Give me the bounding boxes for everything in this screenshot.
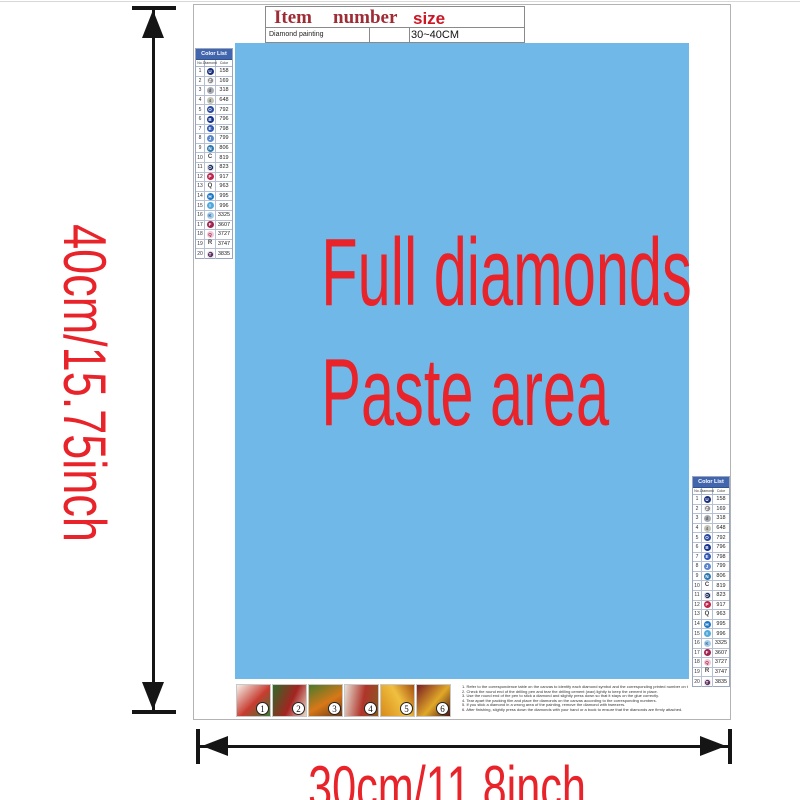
color-row-symbol: R [702,668,713,677]
color-row-code: 799 [713,562,729,571]
color-list-row: 11O823 [693,591,729,601]
diamond-color-dot: I [207,202,214,209]
step-number-badge: 6 [436,702,449,715]
color-row-number: 1 [693,495,702,504]
color-row-number: 14 [693,620,702,629]
color-row-number: 1 [196,67,205,76]
color-list-row: 9N806 [693,572,729,582]
info-size-value: 30~40CM [411,29,459,41]
color-row-code: 3325 [216,211,232,220]
horizontal-arrow-line [198,745,730,748]
color-list-columns: No. Diamond Color [693,488,729,495]
color-row-code: 3727 [713,658,729,667]
color-row-symbol: K [702,639,713,648]
color-list-row: 9N806 [196,144,232,154]
diamond-symbol-letter: C [208,154,212,161]
color-list-row: 14H995 [196,192,232,202]
color-row-number: 18 [196,230,205,239]
color-list-row: 20T3835 [693,677,729,687]
color-list-row: 3d318 [196,86,232,96]
product-spec-image: Item number size Diamond painting 30~40C… [0,0,800,800]
paste-area-title-line1: Full diamonds [321,225,602,321]
color-list-row: 13Q963 [196,182,232,192]
color-row-code: 963 [216,182,232,191]
color-row-number: 18 [693,658,702,667]
color-row-number: 2 [693,505,702,514]
color-row-number: 3 [693,514,702,523]
color-row-code: 996 [216,201,232,210]
color-row-number: 12 [196,173,205,182]
color-row-code: 792 [713,533,729,542]
color-list-row: 6B796 [196,115,232,125]
item-info-table: Item number size Diamond painting 30~40C… [265,6,525,43]
color-list-row: 12P917 [196,173,232,183]
color-row-code: 917 [216,173,232,182]
diamond-color-dot: K [704,640,711,647]
diamond-color-dot: P [704,601,711,608]
color-row-code: 823 [216,163,232,172]
color-list-row: 44648 [196,96,232,106]
arrow-up-icon [142,10,164,38]
color-list-row: 7E798 [196,125,232,135]
color-row-symbol: Q [702,610,713,619]
column-color: Color [216,60,232,66]
color-row-code: 792 [216,105,232,114]
color-row-code: 3325 [713,639,729,648]
color-row-symbol: J [702,562,713,571]
diamond-color-dot: T [704,679,711,686]
color-list-row: 2Z169 [196,77,232,87]
color-row-number: 6 [693,543,702,552]
color-row-symbol: Z [205,77,216,86]
color-list-row: 12P917 [693,601,729,611]
color-row-number: 8 [196,134,205,143]
color-row-symbol: U [702,495,713,504]
color-list-row: 3d318 [693,514,729,524]
column-color: Color [713,488,729,494]
step-number-badge: 5 [400,702,413,715]
color-row-number: 13 [196,182,205,191]
color-row-symbol: O [205,163,216,172]
color-row-symbol: E [205,125,216,134]
color-list-row: 17F3607 [196,221,232,231]
color-row-number: 11 [693,591,702,600]
diamond-color-dot: F [704,649,711,656]
color-row-symbol: O [702,591,713,600]
color-row-code: 823 [713,591,729,600]
color-row-code: 995 [713,620,729,629]
color-row-symbol: O [702,533,713,542]
color-list-row: 20T3835 [196,249,232,259]
color-row-code: 318 [713,514,729,523]
color-row-code: 996 [713,629,729,638]
step-thumbnails: 123456 [236,684,451,717]
step-thumbnail: 6 [416,684,451,717]
vertical-arrow-bottom-cap [132,710,176,714]
top-edge-line [0,1,800,2]
color-row-number: 16 [693,639,702,648]
width-dimension-label: 30cm/11.8inch [253,758,642,800]
height-dimension-label: 40cm/15.75inch [53,143,115,623]
color-row-number: 10 [196,153,205,162]
diamond-color-dot: B [207,116,214,123]
info-item-value: Diamond painting [269,31,323,38]
color-row-code: 806 [713,572,729,581]
diamond-color-dot: O [207,164,214,171]
color-row-number: 4 [693,524,702,533]
color-row-code: 798 [216,125,232,134]
column-diamond: Diamond [205,60,216,66]
color-row-code: 318 [216,86,232,95]
color-row-code: 798 [713,553,729,562]
diamond-color-dot: 4 [704,525,711,532]
info-table-row: Diamond painting 30~40CM [266,28,524,42]
color-row-symbol: C [702,581,713,590]
color-row-code: 819 [713,581,729,590]
vertical-arrow-line [152,8,155,712]
table-divider [409,28,410,43]
color-list-row: 10C819 [196,153,232,163]
color-row-number: 9 [693,572,702,581]
info-header-item: Item [274,7,312,29]
step-number-badge: 2 [292,702,305,715]
color-row-number: 13 [693,610,702,619]
color-list-row: 11O823 [196,163,232,173]
color-row-code: 3607 [713,649,729,658]
color-row-symbol: J [205,134,216,143]
color-row-symbol: Q [205,230,216,239]
color-row-symbol: N [702,572,713,581]
color-row-code: 3607 [216,221,232,230]
color-row-symbol: T [205,249,216,259]
diamond-symbol-letter: Q [208,183,213,190]
color-row-number: 11 [196,163,205,172]
color-row-number: 8 [693,562,702,571]
color-row-symbol: Q [702,658,713,667]
color-row-symbol: P [205,173,216,182]
color-row-number: 17 [196,221,205,230]
instruction-line: 6. After finishing, slightly press down … [462,708,688,713]
color-list-left: Color List No. Diamond Color 1U1582Z1693… [195,48,233,259]
color-list-row: 7E798 [693,553,729,563]
color-row-number: 7 [196,125,205,134]
color-row-symbol: d [702,514,713,523]
color-row-symbol: B [205,115,216,124]
color-row-code: 917 [713,601,729,610]
color-row-code: 3747 [216,240,232,249]
color-list-row: 15I996 [196,201,232,211]
color-row-symbol: O [205,105,216,114]
color-row-number: 3 [196,86,205,95]
color-row-symbol: Z [702,505,713,514]
diamond-color-dot: Q [704,659,711,666]
color-row-symbol: T [702,677,713,687]
arrow-down-icon [142,682,164,710]
color-row-code: 3835 [713,677,729,687]
arrow-right-icon [700,736,726,756]
color-list-row: 19R3747 [196,240,232,250]
step-thumbnail: 5 [380,684,415,717]
color-row-symbol: K [205,211,216,220]
info-header-size: size [413,9,445,29]
color-list-row: 8J799 [693,562,729,572]
color-row-number: 19 [196,240,205,249]
color-row-symbol: N [205,144,216,153]
color-list-row: 17F3607 [693,649,729,659]
color-list-row: 18Q3727 [693,658,729,668]
step-number-badge: 1 [256,702,269,715]
color-list-title: Color List [693,477,729,488]
diamond-color-dot: 4 [207,97,214,104]
step-number-badge: 3 [328,702,341,715]
diamond-color-dot: N [704,573,711,580]
color-list-title: Color List [196,49,232,60]
diamond-color-dot: O [207,106,214,113]
diamond-symbol-letter: C [705,582,709,589]
diamond-color-dot: d [207,87,214,94]
color-list-row: 16K3325 [196,211,232,221]
color-list-right: Color List No. Diamond Color 1U1582Z1693… [692,476,730,687]
diamond-color-dot: I [704,630,711,637]
color-row-number: 2 [196,77,205,86]
color-list-rows: 1U1582Z1693d318446485O7926B7967E7988J799… [196,67,232,259]
color-row-code: 796 [216,115,232,124]
color-list-row: 10C819 [693,581,729,591]
color-row-symbol: I [205,201,216,210]
diamond-color-dot: H [704,621,711,628]
color-row-code: 3747 [713,668,729,677]
color-row-symbol: F [205,221,216,230]
color-row-number: 14 [196,192,205,201]
color-list-row: 44648 [693,524,729,534]
paste-area-title-line2: Paste area [321,345,602,441]
color-list-row: 13Q963 [693,610,729,620]
color-list-row: 5O792 [693,533,729,543]
diamond-color-dot: E [704,553,711,560]
step-thumbnail: 1 [236,684,271,717]
color-row-number: 5 [196,105,205,114]
info-table-header: Item number size [266,7,524,28]
color-row-number: 15 [196,201,205,210]
diamond-color-dot: N [207,145,214,152]
color-list-row: 8J799 [196,134,232,144]
color-row-number: 5 [693,533,702,542]
color-row-number: 20 [693,677,702,687]
color-row-number: 19 [693,668,702,677]
color-row-symbol: B [702,543,713,552]
color-list-row: 6B796 [693,543,729,553]
diamond-color-dot: J [704,563,711,570]
color-row-symbol: Q [205,182,216,191]
color-row-number: 9 [196,144,205,153]
step-thumbnail: 2 [272,684,307,717]
diamond-color-dot: P [207,173,214,180]
color-row-number: 7 [693,553,702,562]
color-row-number: 17 [693,649,702,658]
diamond-color-dot: B [704,544,711,551]
diamond-color-dot: O [704,592,711,599]
color-row-symbol: I [702,629,713,638]
color-list-row: 15I996 [693,629,729,639]
color-row-code: 648 [713,524,729,533]
diamond-symbol-letter: R [705,668,709,675]
color-row-code: 819 [216,153,232,162]
horizontal-arrow-right-cap [728,729,732,764]
color-row-symbol: F [702,649,713,658]
instructions-text: 1. Refer to the correspondence table on … [462,685,688,713]
diamond-color-dot: F [207,221,214,228]
color-row-code: 158 [713,495,729,504]
color-list-row: 5O792 [196,105,232,115]
color-row-code: 963 [713,610,729,619]
diamond-symbol-letter: R [208,240,212,247]
diamond-color-dot: Q [207,231,214,238]
color-row-number: 12 [693,601,702,610]
step-thumbnail: 3 [308,684,343,717]
color-list-columns: No. Diamond Color [196,60,232,67]
paste-area: Full diamonds Paste area [235,43,689,679]
diamond-color-dot: U [704,496,711,503]
color-row-number: 20 [196,249,205,259]
diamond-color-dot: T [207,251,214,258]
step-thumbnail: 4 [344,684,379,717]
diamond-color-dot: H [207,193,214,200]
column-diamond: Diamond [702,488,713,494]
color-row-number: 4 [196,96,205,105]
diamond-color-dot: Z [704,505,711,512]
diamond-color-dot: K [207,212,214,219]
color-row-symbol: d [205,86,216,95]
color-row-code: 799 [216,134,232,143]
diamond-color-dot: U [207,68,214,75]
info-header-number: number [333,7,397,29]
color-list-rows: 1U1582Z1693d318446485O7926B7967E7988J799… [693,495,729,687]
color-row-number: 16 [196,211,205,220]
color-row-symbol: P [702,601,713,610]
color-list-row: 14H995 [693,620,729,630]
color-row-code: 158 [216,67,232,76]
diamond-color-dot: O [704,534,711,541]
color-row-symbol: C [205,153,216,162]
color-row-code: 169 [713,505,729,514]
color-row-symbol: U [205,67,216,76]
color-row-symbol: H [702,620,713,629]
step-number-badge: 4 [364,702,377,715]
color-list-row: 16K3325 [693,639,729,649]
diamond-color-dot: Z [207,77,214,84]
color-row-symbol: E [702,553,713,562]
color-row-symbol: H [205,192,216,201]
color-list-row: 19R3747 [693,668,729,678]
color-row-symbol: 4 [205,96,216,105]
diamond-color-dot: J [207,135,214,142]
color-list-row: 2Z169 [693,505,729,515]
color-row-code: 995 [216,192,232,201]
color-row-number: 6 [196,115,205,124]
color-row-code: 648 [216,96,232,105]
color-row-number: 15 [693,629,702,638]
diamond-color-dot: E [207,125,214,132]
diamond-color-dot: d [704,515,711,522]
color-row-code: 169 [216,77,232,86]
color-row-code: 3835 [216,249,232,259]
table-divider [369,28,370,43]
color-row-symbol: 4 [702,524,713,533]
color-list-row: 18Q3727 [196,230,232,240]
color-list-row: 1U158 [196,67,232,77]
color-row-code: 796 [713,543,729,552]
color-row-symbol: R [205,240,216,249]
color-row-number: 10 [693,581,702,590]
diamond-symbol-letter: Q [705,611,710,618]
color-row-code: 806 [216,144,232,153]
color-list-row: 1U158 [693,495,729,505]
color-row-code: 3727 [216,230,232,239]
arrow-left-icon [202,736,228,756]
